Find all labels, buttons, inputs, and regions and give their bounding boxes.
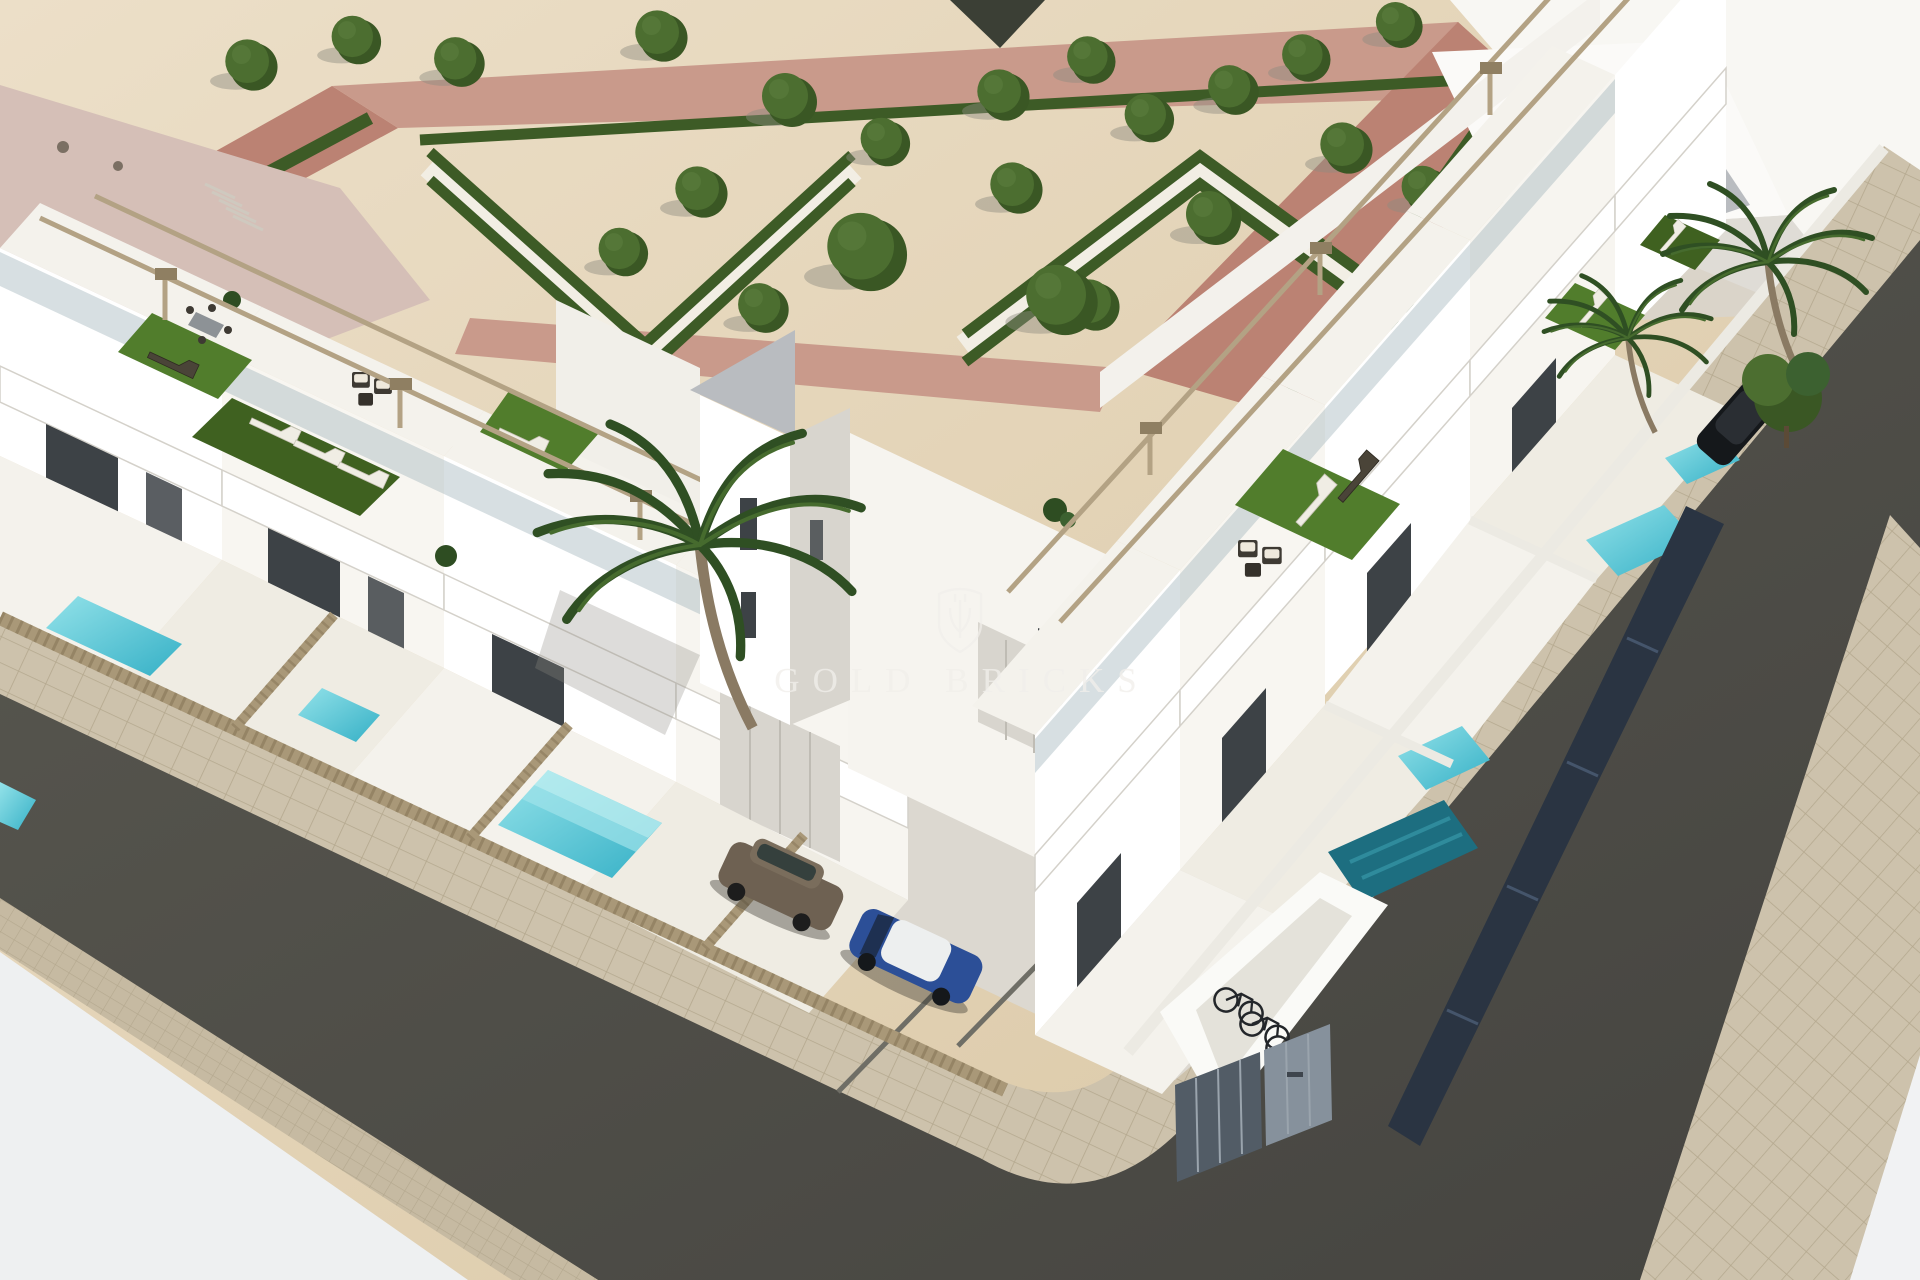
roof-vent: [113, 161, 123, 171]
potted-plant: [435, 545, 457, 567]
window: [810, 520, 823, 560]
watermark-text: GOLD BRICKS: [774, 661, 1149, 700]
architectural-render: GOLD BRICKS: [0, 0, 1920, 1280]
roof-vent: [57, 141, 69, 153]
cabinet-handle: [1287, 1072, 1303, 1077]
